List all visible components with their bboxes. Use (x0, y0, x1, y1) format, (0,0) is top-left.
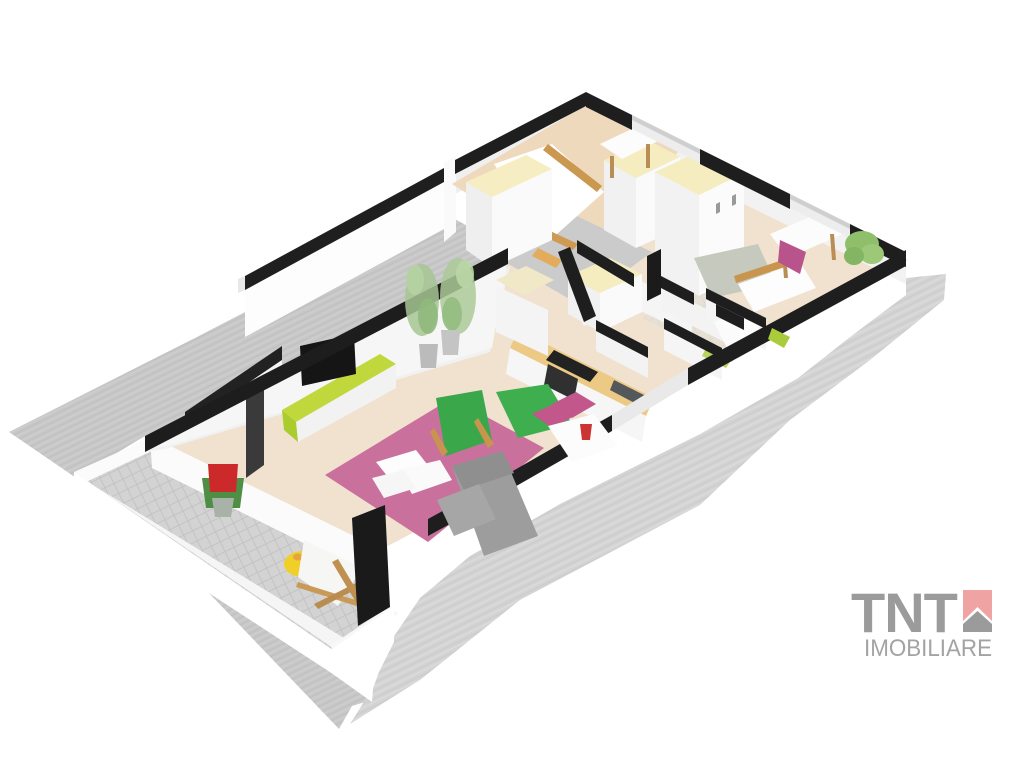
svg-text:IMOBILIARE: IMOBILIARE (864, 635, 992, 662)
